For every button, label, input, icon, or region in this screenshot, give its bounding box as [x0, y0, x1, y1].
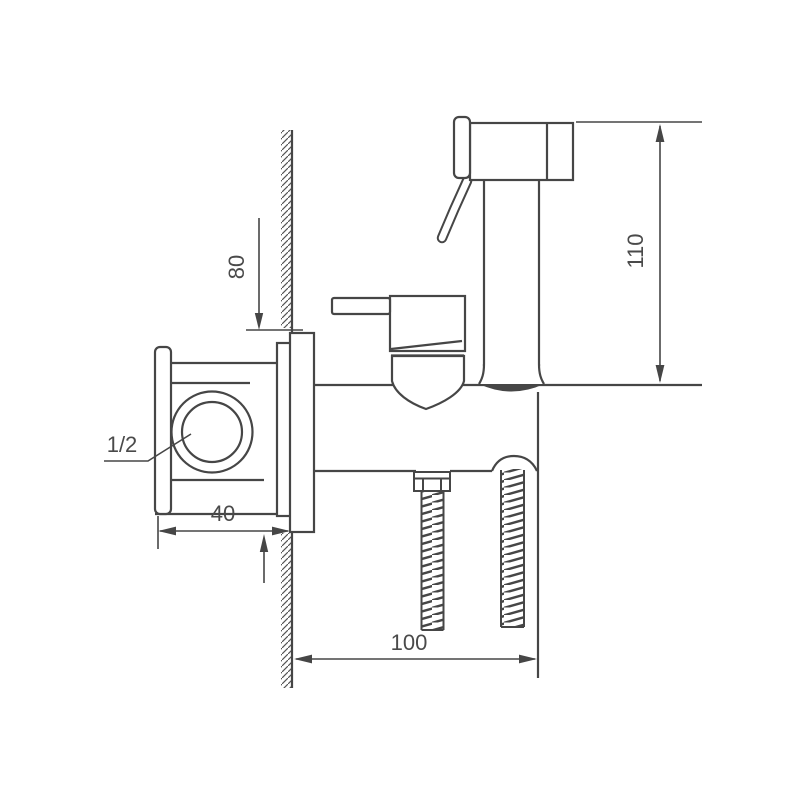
drawing-canvas: 1/2: [0, 0, 800, 800]
handle-bell-fill: [479, 364, 544, 384]
water-inlet-flange: [155, 343, 291, 516]
connection-size-label: 1/2: [107, 432, 138, 457]
bolt-head: [414, 472, 450, 491]
hose-boss-dome: [492, 456, 537, 471]
mixer-cartridge: [332, 296, 465, 409]
hose-thread: [501, 469, 524, 627]
handle-bell-rim: [479, 384, 544, 392]
dim-label-110: 110: [623, 233, 648, 268]
dim-40: 40: [158, 501, 290, 549]
dim-80-arrow-down: [255, 313, 263, 330]
dim-label-100: 100: [391, 630, 428, 655]
flange-neck: [277, 343, 291, 516]
cartridge-dome: [392, 356, 464, 409]
dim-40-arrow-left: [158, 527, 176, 536]
bidet-mixer-diagram: 1/2: [0, 0, 800, 800]
dim-100: 100: [294, 630, 537, 663]
sprayer-head: [470, 123, 573, 180]
flange-end-bar: [155, 347, 171, 514]
wall-hatch-upper: [281, 130, 292, 328]
dim-110-arrow-up: [656, 124, 665, 142]
hex-fixing-bolt: [414, 472, 450, 630]
mounting-plate: [290, 333, 314, 532]
bolt-thread: [422, 491, 444, 630]
dim-100-arrow-right: [519, 655, 537, 664]
dim-110-arrow-down: [656, 365, 665, 383]
sprayer-nozzle-face: [454, 117, 470, 178]
threaded-hose-connection: [501, 469, 524, 627]
sprayer-trigger-fill: [442, 181, 467, 238]
mixer-lever: [332, 298, 390, 314]
dim-110: 110: [576, 122, 702, 383]
dim-label-40: 40: [211, 501, 235, 526]
dim-label-80: 80: [224, 255, 249, 279]
inlet-port-inner-circle: [182, 402, 242, 462]
dim-80-counter-arrow-up: [260, 534, 268, 552]
wall-hatch-lower: [281, 533, 292, 688]
dim-100-arrow-left: [294, 655, 312, 664]
